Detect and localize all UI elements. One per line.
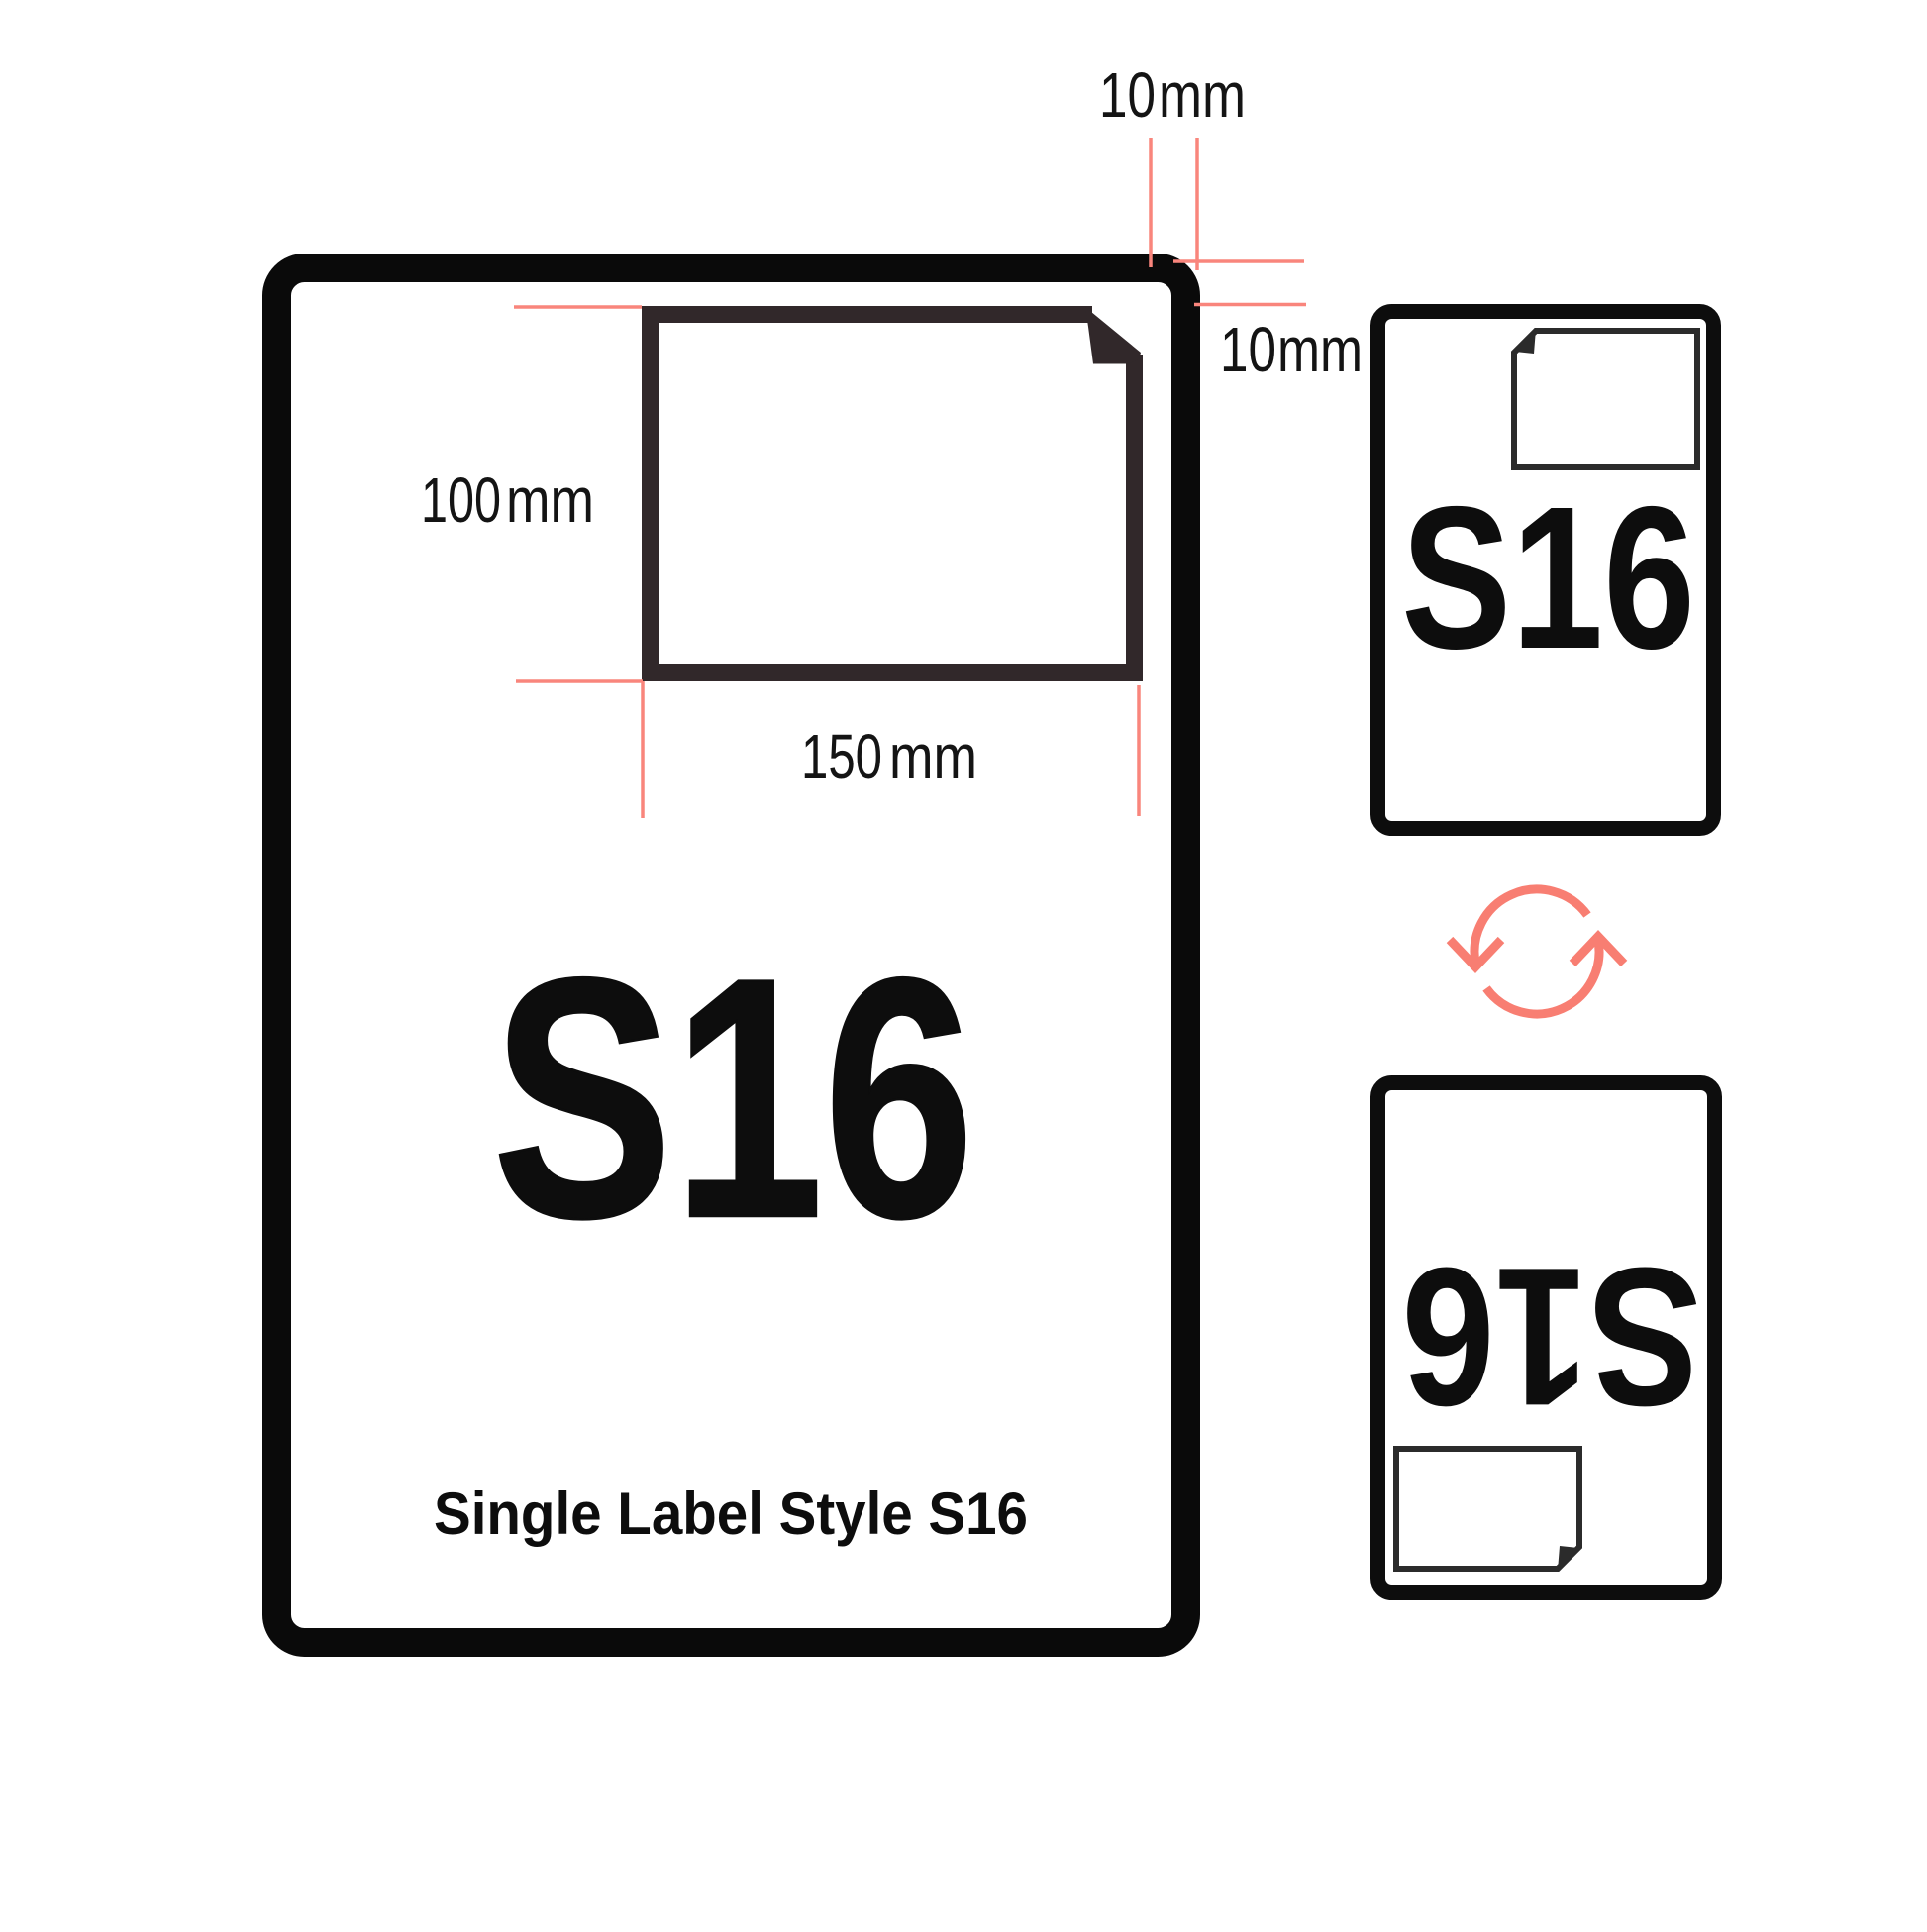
svg-text:10: 10: [1220, 314, 1276, 385]
svg-text:S16: S16: [1401, 464, 1695, 691]
svg-text:mm: mm: [506, 464, 594, 536]
svg-text:mm: mm: [1159, 59, 1246, 131]
svg-text:100: 100: [421, 464, 501, 536]
svg-text:150: 150: [801, 721, 882, 792]
svg-text:S16: S16: [492, 908, 974, 1289]
svg-text:Single Label Style S16: Single Label Style S16: [434, 1480, 1028, 1547]
svg-text:mm: mm: [889, 721, 977, 792]
svg-text:10: 10: [1099, 59, 1156, 131]
svg-text:S16: S16: [1401, 1226, 1701, 1446]
svg-text:mm: mm: [1277, 314, 1363, 385]
